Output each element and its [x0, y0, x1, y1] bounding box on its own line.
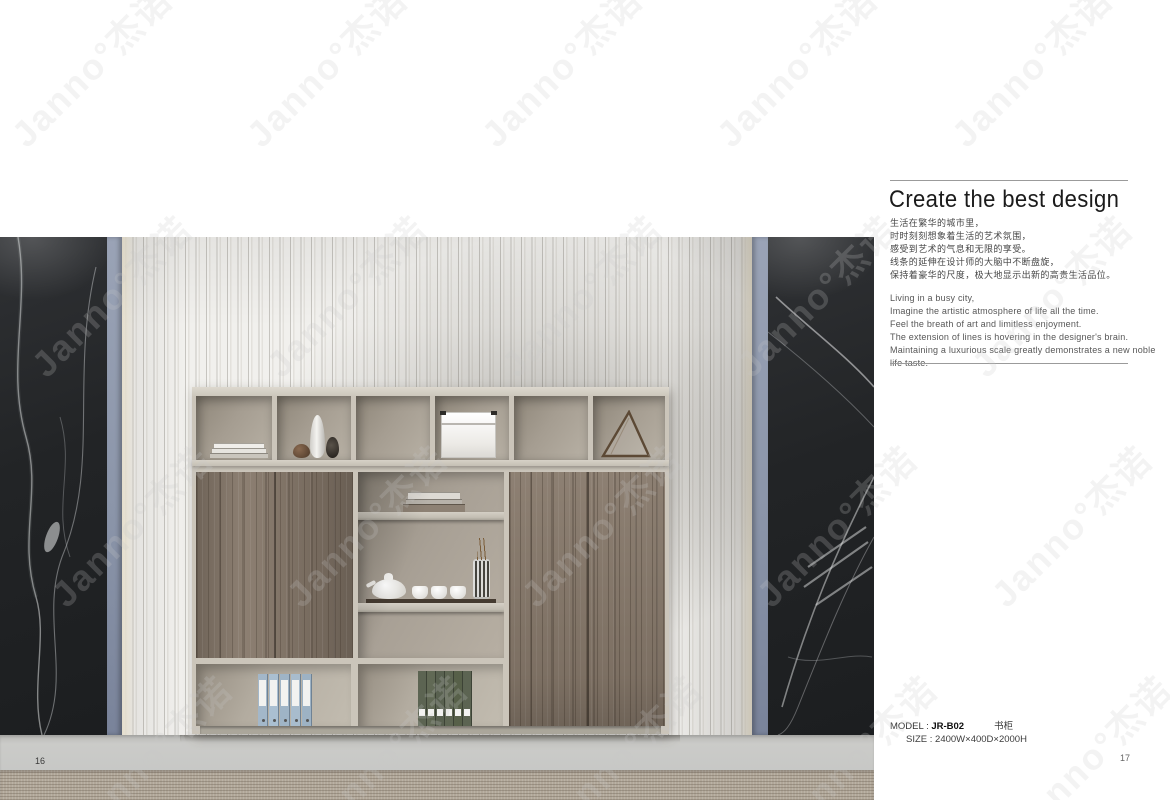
door-gap — [587, 472, 589, 726]
model-category: 书柜 — [994, 721, 1013, 732]
bottom-cell-2 — [358, 664, 503, 726]
cn-line: 感受到艺术的气息和无限的享受。 — [890, 243, 1116, 256]
en-line: Living in a busy city, — [890, 292, 1170, 305]
marble-panel-left — [0, 237, 107, 735]
cn-line: 时时刻刻想象着生活的艺术氛围， — [890, 230, 1116, 243]
cabinet-shelf-band — [192, 460, 669, 466]
size-info: SIZE : 2400W×400D×2000H — [906, 734, 1027, 745]
cabinet-doors-left — [196, 472, 353, 658]
bottom-cell-1 — [196, 664, 351, 726]
marble-sheen — [768, 237, 874, 436]
size-label: SIZE : — [906, 734, 932, 745]
rule-bottom — [890, 363, 1128, 364]
janno-watermark: Janno°杰诺 — [0, 0, 182, 157]
en-line: Maintaining a luxurious scale greatly de… — [890, 344, 1170, 370]
en-line: Imagine the artistic atmosphere of life … — [890, 305, 1170, 318]
gourd-vase — [293, 444, 310, 458]
cubby-3 — [356, 396, 430, 460]
green-binders — [418, 671, 472, 726]
size-value: 2400W×400D×2000H — [935, 734, 1027, 745]
door-gap — [274, 472, 276, 658]
cubby-1 — [196, 396, 272, 460]
cn-line: 线条的延伸在设计师的大脑中不断盘旋， — [890, 256, 1116, 269]
model-label: MODEL : — [890, 721, 929, 732]
janno-watermark: Janno°杰诺 — [233, 0, 417, 157]
page-number-right: 17 — [1120, 753, 1130, 763]
en-line: Feel the breath of art and limitless enj… — [890, 318, 1170, 331]
bookcase-cabinet — [192, 387, 669, 734]
blue-binders — [258, 674, 313, 726]
cabinet-plinth — [200, 726, 661, 734]
tall-vase — [310, 415, 325, 458]
blue-trim-left — [107, 237, 122, 735]
storage-box — [441, 412, 496, 458]
janno-watermark: Janno°杰诺 — [998, 663, 1170, 800]
cn-line: 保持着豪华的尺度，极大地显示出新的高贵生活品位。 — [890, 269, 1116, 282]
catalog-spread: Create the best design 生活在繁华的城市里， 时时刻刻想象… — [0, 0, 1170, 800]
cabinet-top-panel — [192, 387, 669, 396]
english-copy: Living in a busy city, Imagine the artis… — [890, 292, 1170, 370]
cabinet-floor-shadow — [180, 735, 680, 742]
marble-panel-right — [768, 237, 874, 735]
cabinet-doors-right — [509, 472, 665, 726]
rule-top — [890, 180, 1128, 181]
cubby-5 — [514, 396, 588, 460]
open-shelf-section — [358, 472, 504, 658]
janno-watermark: Janno°杰诺 — [468, 0, 652, 157]
cubby-4 — [435, 396, 509, 460]
blue-trim-right — [752, 237, 768, 735]
model-value: JR-B02 — [931, 721, 964, 732]
cavity-shadow — [358, 472, 504, 658]
product-photo — [0, 237, 874, 800]
janno-watermark: Janno°杰诺 — [938, 0, 1122, 157]
page-title: Create the best design — [889, 186, 1119, 214]
carpet — [0, 770, 874, 800]
en-line: The extension of lines is hovering in th… — [890, 331, 1170, 344]
glass-decanter — [326, 437, 339, 458]
chinese-copy: 生活在繁华的城市里， 时时刻刻想象着生活的艺术氛围， 感受到艺术的气息和无限的享… — [890, 217, 1116, 282]
picture-frame — [599, 410, 651, 458]
page-number-left: 16 — [35, 756, 45, 766]
janno-watermark: Janno°杰诺 — [703, 0, 887, 157]
marble-sheen — [0, 237, 107, 436]
cubby-2 — [277, 396, 351, 460]
model-info: MODEL : JR-B02书柜 — [890, 718, 1013, 732]
books-stack — [210, 443, 268, 458]
cn-line: 生活在繁华的城市里， — [890, 217, 1116, 230]
janno-watermark: Janno°杰诺 — [978, 433, 1162, 617]
cubby-6 — [593, 396, 665, 460]
